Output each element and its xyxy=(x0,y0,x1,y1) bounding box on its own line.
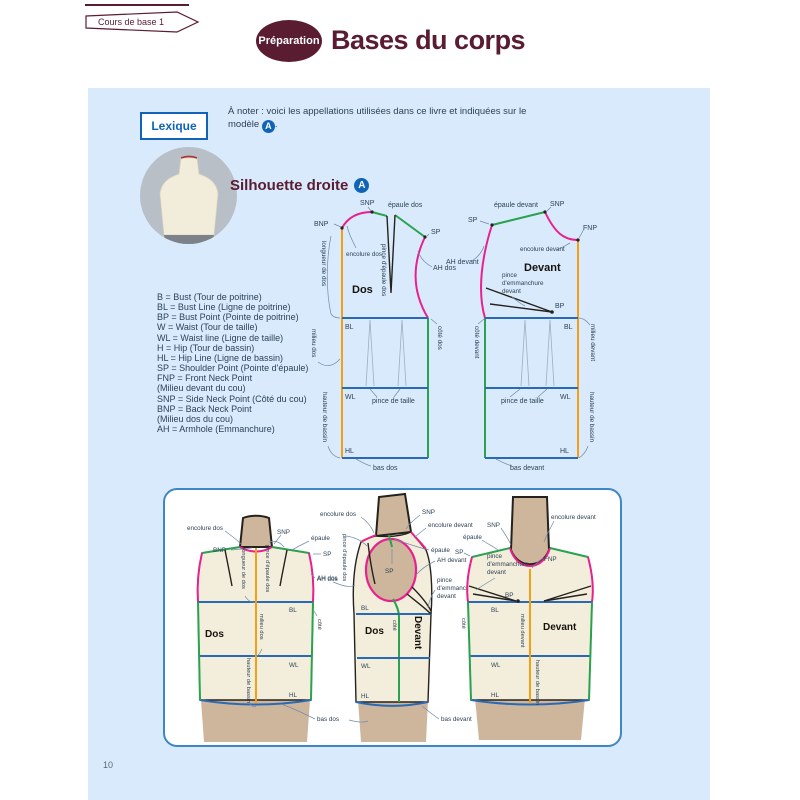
label-pince-epaule-dos: pince d'épaule dos xyxy=(264,545,270,592)
label-fnp: FNP xyxy=(544,556,557,563)
bp-point xyxy=(550,310,554,314)
section-title: Silhouette droite A xyxy=(230,177,369,194)
pattern-diagram-front: épaule devant SNP SP FNP encolure devant… xyxy=(446,201,597,472)
body-figures: encolure dos SNP BNP épaule SP pince d'é… xyxy=(165,490,620,745)
book-page: Cours de base 1 Préparation Bases du cor… xyxy=(0,0,800,800)
label-encolure-dos: encolure dos xyxy=(346,251,382,258)
label-fnp: FNP xyxy=(583,225,597,232)
label-hauteur-de-bassin: hauteur de bassin xyxy=(245,658,251,703)
label-devant-min: devant xyxy=(487,569,506,576)
label-demmanchure: d'emmanchure xyxy=(487,561,529,568)
label-sp: SP xyxy=(431,229,441,236)
label-snp: SNP xyxy=(277,529,290,536)
label-hauteur-de-bassin: hauteur de bassin xyxy=(321,392,328,443)
front-neckline xyxy=(545,212,578,240)
label-demmanchure: d'emmanchure xyxy=(502,280,544,287)
fnp-point xyxy=(576,238,579,241)
label-ah-devant: AH devant xyxy=(446,259,479,266)
label-cote-devant: côté devant xyxy=(473,326,480,359)
label-cote: côté xyxy=(391,620,397,631)
label-bnp: BNP xyxy=(314,221,329,228)
label-bas-devant: bas devant xyxy=(441,716,472,723)
label-milieu-devant: milieu devant xyxy=(519,614,525,648)
label-epaule: épaule xyxy=(431,547,450,554)
label-pince-epaule-dos: pince d'épaule dos xyxy=(380,244,387,296)
top-rule xyxy=(85,4,189,6)
leader-lines xyxy=(318,207,437,466)
label-dos: Dos xyxy=(352,284,373,296)
label-epaule: épaule xyxy=(311,535,330,542)
label-epaule-dos: épaule dos xyxy=(388,202,423,209)
label-pince: pince xyxy=(487,553,503,560)
label-devant-min: devant xyxy=(502,288,521,295)
label-bl: BL xyxy=(491,607,499,614)
front-shoulder-seam xyxy=(492,212,545,225)
label-bas-devant: bas devant xyxy=(510,465,544,472)
label-dos: Dos xyxy=(205,629,224,640)
label-encolure-dos: encolure dos xyxy=(320,511,356,518)
lexique-box: Lexique xyxy=(140,112,208,140)
waist-dart xyxy=(546,320,554,386)
neck xyxy=(376,494,411,536)
note-suffix: . xyxy=(275,119,278,130)
label-sp: SP xyxy=(468,217,478,224)
label-bl: BL xyxy=(564,324,573,331)
figure-back-view: encolure dos SNP BNP épaule SP pince d'é… xyxy=(187,516,338,742)
label-epaule-devant: épaule devant xyxy=(494,202,538,209)
label-wl: WL xyxy=(361,663,371,670)
label-epaule: épaule xyxy=(463,534,482,541)
waist-dart xyxy=(398,320,406,386)
label-ah-dos: AH dos xyxy=(317,575,338,582)
label-pince: pince xyxy=(437,577,453,584)
label-snp: SNP xyxy=(550,201,565,208)
label-bp: BP xyxy=(505,592,513,599)
label-milieu-devant: milieu devant xyxy=(589,324,596,361)
label-wl: WL xyxy=(491,662,501,669)
label-encolure-devant: encolure devant xyxy=(551,514,596,521)
label-hl: HL xyxy=(361,693,370,700)
figure-side-view: encolure dos pince d'épaule dos SNP enco… xyxy=(317,494,479,742)
label-bp: BP xyxy=(555,303,565,310)
waist-dart xyxy=(366,320,374,386)
figure-front-view: SNP épaule SP encolure devant FNP pince … xyxy=(455,497,596,740)
label-pince-epaule-dos: pince d'épaule dos xyxy=(341,534,347,581)
label-hl: HL xyxy=(491,692,500,699)
label-cote: côté xyxy=(460,618,466,629)
breadcrumb: Cours de base 1 xyxy=(85,10,205,36)
label-cote-dos: côté dos xyxy=(436,326,443,350)
label-milieu-dos: milieu dos xyxy=(258,614,264,640)
snp-point xyxy=(543,210,546,213)
label-longueur-de-dos: longueur de dos xyxy=(240,548,246,589)
label-bl: BL xyxy=(289,607,297,614)
note-text: À noter : voici les appellations utilisé… xyxy=(228,105,560,133)
back-shoulder-seam xyxy=(395,215,425,237)
mannequin-illustration xyxy=(140,147,237,244)
label-wl: WL xyxy=(560,394,571,401)
back-armhole xyxy=(416,237,428,318)
label-bas-dos: bas dos xyxy=(373,465,398,472)
label-hauteur-de-bassin: hauteur de bassin xyxy=(534,660,540,705)
dress-form-torso xyxy=(160,158,218,235)
label-ah-dos: AH dos xyxy=(433,265,456,272)
pattern-diagram-back: BNP SNP épaule dos SP encolure dos pince… xyxy=(310,200,456,472)
label-dos: Dos xyxy=(365,626,384,637)
label-devant: Devant xyxy=(412,616,423,650)
label-sp: SP xyxy=(385,568,393,575)
section-title-text: Silhouette droite xyxy=(230,177,348,194)
back-neckline xyxy=(342,212,372,228)
sp-point xyxy=(490,223,493,226)
figures-box: encolure dos SNP BNP épaule SP pince d'é… xyxy=(163,488,622,747)
neck xyxy=(240,516,272,547)
label-cote: côté xyxy=(316,619,322,630)
page-title: Bases du corps xyxy=(331,25,525,56)
label-devant-min: devant xyxy=(437,593,456,600)
shoulder-dart xyxy=(387,215,395,293)
label-snp: SNP xyxy=(360,200,375,207)
label-encolure-dos: encolure dos xyxy=(187,525,223,532)
label-longueur-de-dos: longueur de dos xyxy=(320,241,327,286)
label-ah-devant: AH devant xyxy=(437,557,467,564)
breadcrumb-label: Cours de base 1 xyxy=(98,17,164,27)
chapter-badge: Préparation xyxy=(256,20,322,62)
back-shoulder-seam xyxy=(372,212,387,216)
label-devant: Devant xyxy=(524,262,561,274)
label-hl: HL xyxy=(289,692,298,699)
label-sp: SP xyxy=(323,551,331,558)
flat-pattern-diagrams: BNP SNP épaule dos SP encolure dos pince… xyxy=(298,196,648,476)
label-devant: Devant xyxy=(543,622,577,633)
label-sp: SP xyxy=(455,549,463,556)
label-snp: SNP xyxy=(487,522,500,529)
label-hl: HL xyxy=(345,448,354,455)
bp-point xyxy=(516,599,520,603)
label-milieu-dos: milieu dos xyxy=(310,329,317,357)
page-number: 10 xyxy=(103,760,113,770)
label-wl: WL xyxy=(289,662,299,669)
label-pince-de-taille: pince de taille xyxy=(501,398,544,405)
label-encolure-devant: encolure devant xyxy=(520,246,565,253)
label-bas-dos: bas dos xyxy=(317,716,339,723)
label-hauteur-de-bassin: hauteur de bassin xyxy=(588,392,595,443)
label-encolure-devant: encolure devant xyxy=(428,522,473,529)
label-hl: HL xyxy=(560,448,569,455)
label-pince: pince xyxy=(502,272,518,279)
section-a-badge: A xyxy=(354,178,369,193)
label-bnp: BNP xyxy=(213,547,226,554)
label-pince-de-taille: pince de taille xyxy=(372,398,415,405)
model-a-badge: A xyxy=(262,120,275,133)
waist-dart xyxy=(521,320,529,386)
label-snp: SNP xyxy=(422,509,435,516)
label-bl: BL xyxy=(361,605,369,612)
neck xyxy=(511,497,549,564)
label-wl: WL xyxy=(345,394,356,401)
label-bl: BL xyxy=(345,324,354,331)
mannequin-photo xyxy=(140,147,237,244)
